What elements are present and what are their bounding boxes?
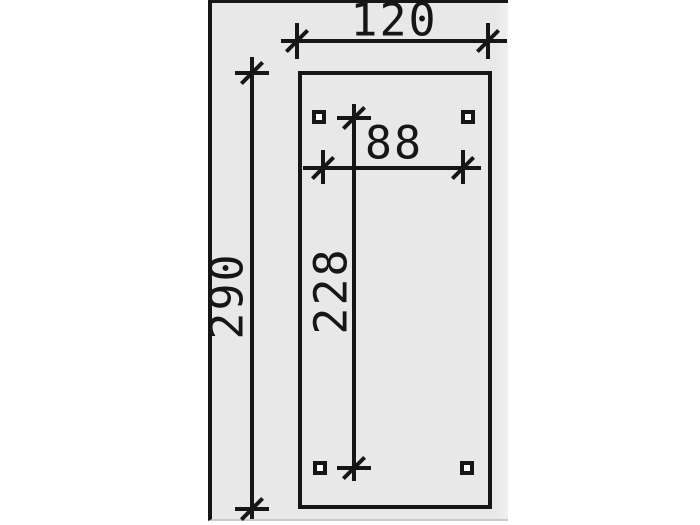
post-top-right	[461, 110, 475, 124]
width-dim-label: 120	[350, 0, 437, 43]
post-bottom-right	[460, 461, 474, 475]
post-top-left	[312, 110, 326, 124]
post-bottom-left	[313, 461, 327, 475]
inner-width-dim-label: 88	[365, 121, 423, 166]
technical-drawing-image: 120 290 228 88	[0, 0, 700, 525]
height-dim-label: 290	[205, 252, 250, 339]
inner-height-dim-label: 228	[309, 247, 354, 334]
